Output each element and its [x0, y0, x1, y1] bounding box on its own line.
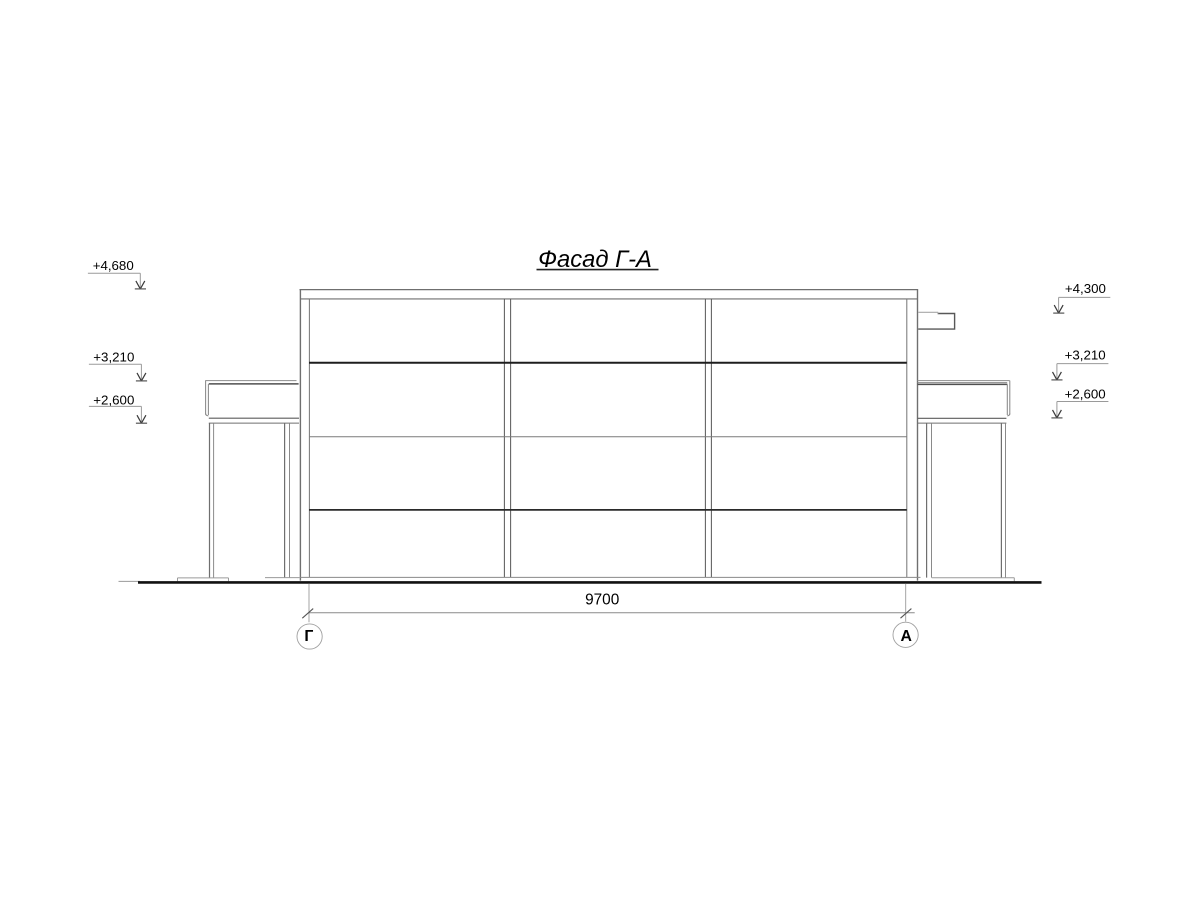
svg-text:А: А — [900, 628, 911, 645]
svg-text:+3,210: +3,210 — [1065, 347, 1106, 362]
svg-text:+3,210: +3,210 — [93, 350, 134, 365]
svg-text:+2,600: +2,600 — [1065, 386, 1106, 401]
svg-text:+2,600: +2,600 — [93, 393, 134, 408]
svg-text:+4,300: +4,300 — [1065, 281, 1106, 296]
svg-text:Г: Г — [304, 628, 313, 645]
svg-text:+4,680: +4,680 — [93, 258, 134, 273]
svg-text:9700: 9700 — [585, 592, 619, 609]
